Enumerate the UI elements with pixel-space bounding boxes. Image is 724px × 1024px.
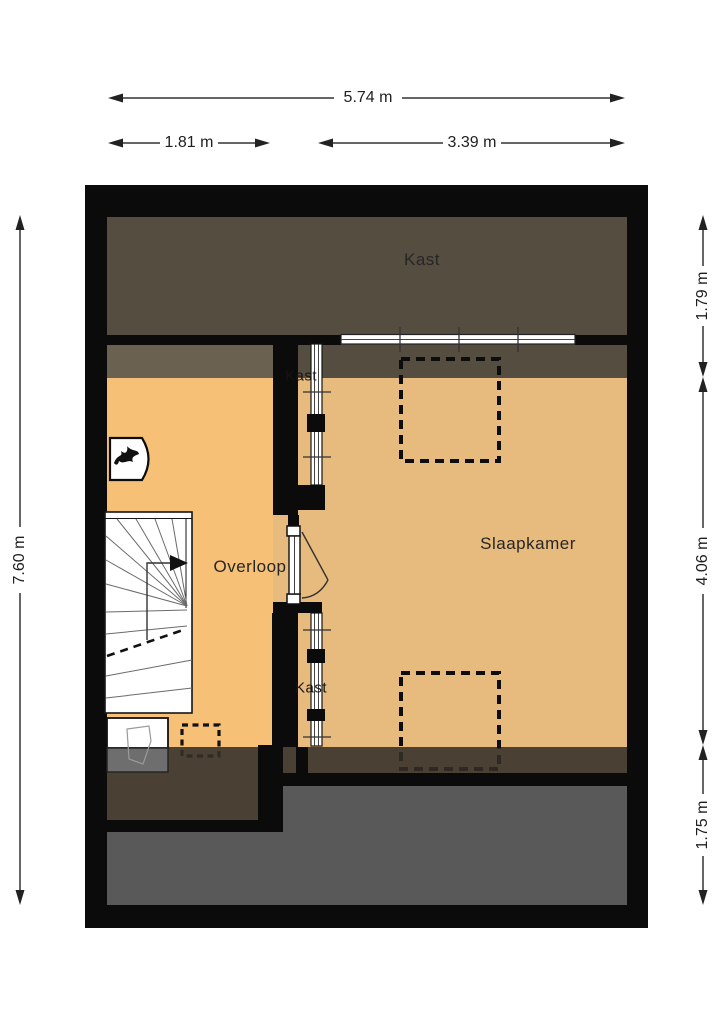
dimension-top-left: 1.81 m: [165, 134, 214, 152]
room-label-kast-lower: Kast: [295, 680, 327, 697]
dimension-top-total: 5.74 m: [344, 89, 393, 107]
floor-plan-canvas: [0, 0, 724, 1024]
room-label-kast-top: Kast: [404, 250, 440, 270]
floor-plan: 5.74 m 1.81 m 3.39 m 7.60 m 1.79 m 4.06 …: [0, 0, 724, 1024]
room-label-kast-upper: Kast: [285, 368, 317, 385]
room-label-overloop: Overloop: [214, 557, 287, 577]
dimension-top-right: 3.39 m: [448, 134, 497, 152]
boiler: [110, 438, 149, 480]
room-label-slaapkamer: Slaapkamer: [480, 534, 576, 554]
zone-bottom-left-gray: [107, 832, 283, 905]
dimension-right-top: 1.79 m: [694, 272, 712, 321]
floor-slaapkamer: [298, 378, 627, 747]
zone-bottom-right-gray: [283, 786, 627, 905]
stair-lower-box: [107, 718, 168, 772]
dimension-right-middle: 4.06 m: [694, 537, 712, 586]
dimension-right-bottom: 1.75 m: [694, 801, 712, 850]
dimension-left-total: 7.60 m: [11, 536, 29, 585]
zone-olive-strip: [107, 345, 273, 378]
